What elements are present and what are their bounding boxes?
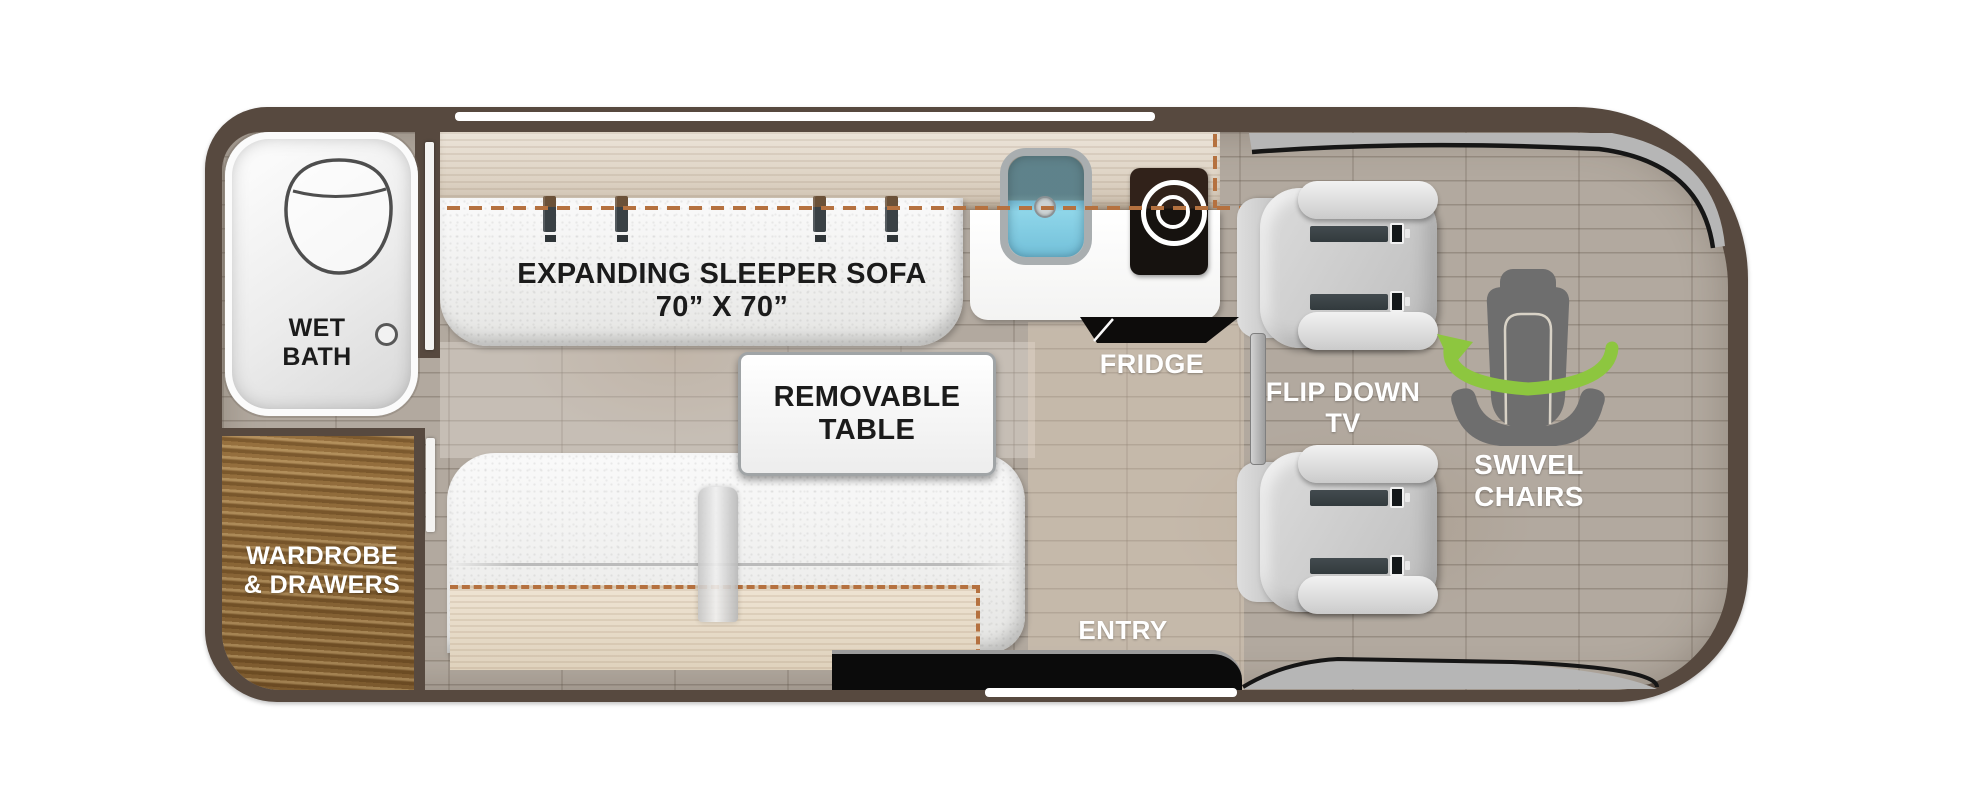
sleeper-sofa-label-line1: EXPANDING SLEEPER SOFA [462,258,982,291]
wardrobe-label-line2: & DRAWERS [222,571,422,600]
seatbelt-icon [543,196,556,244]
entry-step [832,650,1242,690]
flip-down-tv-label-line1: FLIP DOWN [1243,377,1443,408]
seatbelt-icon [1310,225,1410,242]
burner-ring-inner [1156,195,1190,229]
wardrobe-label: WARDROBE & DRAWERS [222,542,422,600]
flip-down-tv-label: FLIP DOWN TV [1243,377,1443,439]
wardrobe-label-line1: WARDROBE [222,542,422,571]
seatbelt-icon [1310,557,1410,574]
seatbelt-icon [1310,489,1410,506]
captain-chair-armrest [1298,445,1438,483]
wet-bath-label-line1: WET [242,314,392,343]
captain-chair-armrest [1298,576,1438,614]
table-pedestal-leg [698,487,738,622]
bath-door-upper [425,142,434,350]
swivel-chairs-label-line1: SWIVEL [1429,449,1629,481]
swivel-chairs-label: SWIVEL CHAIRS [1429,449,1629,513]
swivel-chairs-label-line2: CHAIRS [1429,481,1629,513]
captain-chair-armrest [1298,312,1438,350]
sleeper-sofa-label: EXPANDING SLEEPER SOFA 70” X 70” [462,258,982,325]
entry-label: ENTRY [1048,616,1198,646]
wet-bath-label-line2: BATH [242,343,392,372]
fridge-label: FRIDGE [1072,349,1232,380]
entry-accent-strip [985,688,1237,697]
removable-table-line1: REMOVABLE [741,381,993,414]
removable-table-callout: REMOVABLE TABLE [738,352,996,476]
wet-bath-label: WET BATH [242,314,392,372]
seatbelt-icon [885,196,898,244]
rv-floor-plan: WARDROBE & DRAWERS WET BATH EXPANDING SL… [0,0,1961,800]
removable-table-line2: TABLE [741,414,993,447]
bed-extension-dash-vertical [1213,134,1217,208]
seatbelt-icon [1310,293,1410,310]
captain-chair-armrest [1298,181,1438,219]
bath-door-lower [426,438,435,532]
seatbelt-icon [615,196,628,244]
interior-floor: WARDROBE & DRAWERS WET BATH EXPANDING SL… [222,132,1728,690]
sleeper-sofa-label-line2: 70” X 70” [462,291,982,324]
flip-down-tv-label-line2: TV [1243,408,1443,439]
wet-bath [225,132,418,416]
entry-label-text: ENTRY [1048,616,1198,646]
fridge-label-text: FRIDGE [1072,349,1232,380]
bed-extension-dash-horizontal [447,206,1313,210]
roof-accent-strip [455,112,1155,121]
seatbelt-icon [813,196,826,244]
